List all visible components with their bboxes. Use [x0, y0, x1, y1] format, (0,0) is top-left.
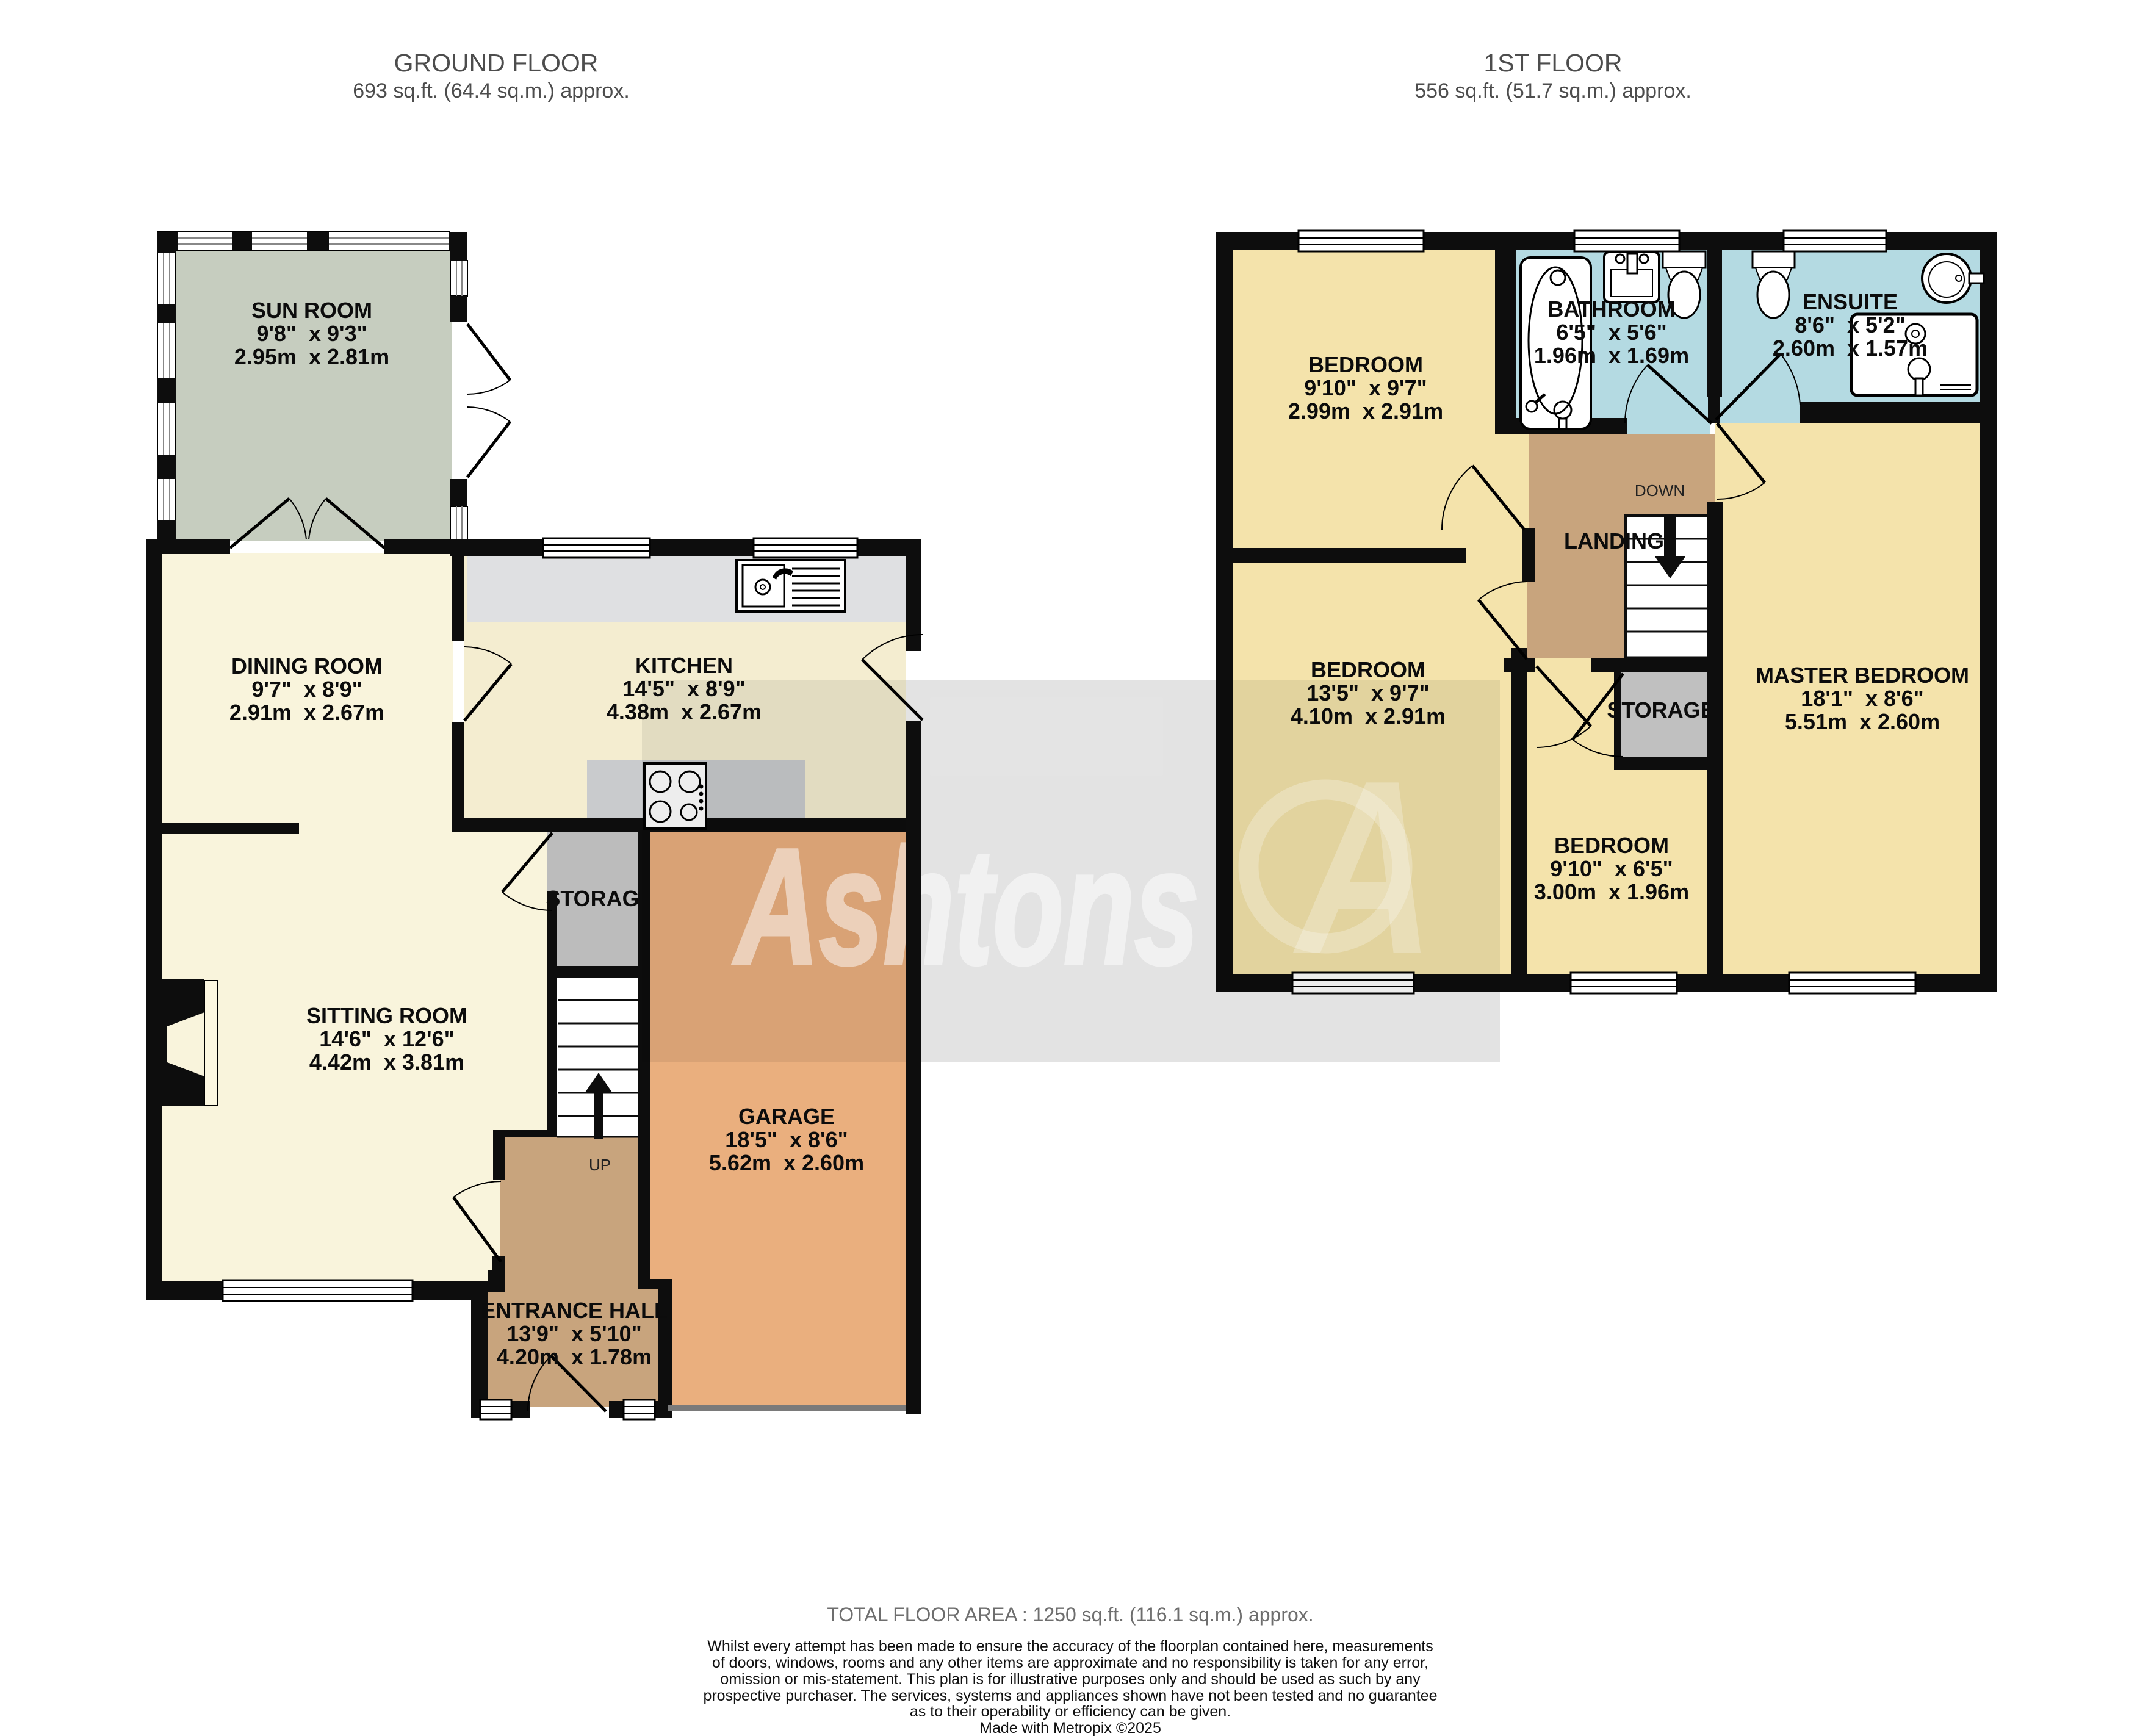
svg-text:as to their operability or eff: as to their operability or efficiency ca… [910, 1703, 1231, 1720]
svg-text:of doors, windows, rooms and a: of doors, windows, rooms and any other i… [712, 1654, 1428, 1671]
svg-text:Made with Metropix ©2025: Made with Metropix ©2025 [979, 1720, 1161, 1736]
svg-text:9'10" x 9'7": 9'10" x 9'7" [1304, 375, 1427, 400]
svg-text:prospective purchaser. The ser: prospective purchaser. The services, sys… [703, 1687, 1437, 1704]
svg-text:2.91m x 2.67m: 2.91m x 2.67m [229, 700, 384, 725]
svg-text:LANDING: LANDING [1564, 528, 1664, 553]
svg-text:UP: UP [589, 1156, 611, 1174]
svg-text:14'6" x 12'6": 14'6" x 12'6" [319, 1026, 454, 1051]
svg-text:9'8" x 9'3": 9'8" x 9'3" [256, 321, 367, 346]
svg-text:GARAGE: GARAGE [738, 1104, 835, 1129]
svg-text:2.60m x 1.57m: 2.60m x 1.57m [1773, 336, 1928, 361]
svg-text:3.00m x 1.96m: 3.00m x 1.96m [1534, 879, 1689, 904]
svg-text:8'6" x 5'2": 8'6" x 5'2" [1795, 312, 1905, 337]
svg-text:2.99m x 2.91m: 2.99m x 2.91m [1288, 398, 1443, 423]
svg-text:Whilst every attempt has been: Whilst every attempt has been made to en… [707, 1638, 1433, 1655]
svg-text:18'1" x 8'6": 18'1" x 8'6" [1801, 686, 1923, 711]
svg-text:ENTRANCE HALL: ENTRANCE HALL [481, 1298, 668, 1323]
svg-text:4.42m x 3.81m: 4.42m x 3.81m [309, 1050, 464, 1075]
svg-text:6'5" x 5'6": 6'5" x 5'6" [1556, 320, 1666, 345]
svg-text:693 sq.ft. (64.4 sq.m.) approx: 693 sq.ft. (64.4 sq.m.) approx. [353, 79, 630, 103]
svg-text:BEDROOM: BEDROOM [1311, 657, 1425, 682]
svg-text:DOWN: DOWN [1635, 481, 1685, 500]
svg-text:BATHROOM: BATHROOM [1547, 297, 1675, 322]
svg-text:BEDROOM: BEDROOM [1308, 352, 1423, 377]
svg-text:1ST FLOOR: 1ST FLOOR [1483, 49, 1622, 77]
svg-text:13'9" x 5'10": 13'9" x 5'10" [506, 1321, 641, 1346]
svg-text:4.20m x 1.78m: 4.20m x 1.78m [497, 1344, 652, 1369]
svg-text:9'10" x 6'5": 9'10" x 6'5" [1550, 856, 1673, 881]
svg-text:5.51m x 2.60m: 5.51m x 2.60m [1785, 709, 1940, 734]
svg-text:omission or mis-statement. Thi: omission or mis-statement. This plan is … [720, 1671, 1421, 1688]
svg-text:Ashtons: Ashtons [732, 815, 1199, 999]
svg-text:DINING ROOM: DINING ROOM [231, 654, 383, 679]
svg-text:STORAGE: STORAGE [546, 886, 654, 911]
svg-text:STORAGE: STORAGE [1607, 697, 1715, 722]
svg-text:ENSUITE: ENSUITE [1803, 289, 1898, 314]
svg-text:BEDROOM: BEDROOM [1554, 833, 1669, 858]
svg-text:9'7" x 8'9": 9'7" x 8'9" [251, 677, 362, 702]
svg-text:KITCHEN: KITCHEN [635, 653, 733, 678]
svg-text:SITTING ROOM: SITTING ROOM [306, 1003, 467, 1028]
svg-text:GROUND FLOOR: GROUND FLOOR [394, 49, 599, 77]
svg-text:TOTAL FLOOR AREA : 1250 sq.ft.: TOTAL FLOOR AREA : 1250 sq.ft. (116.1 sq… [827, 1604, 1313, 1626]
svg-text:18'5" x 8'6": 18'5" x 8'6" [725, 1127, 848, 1152]
svg-text:A: A [1291, 729, 1435, 1005]
svg-text:2.95m x 2.81m: 2.95m x 2.81m [234, 344, 389, 369]
svg-text:556 sq.ft. (51.7 sq.m.) approx: 556 sq.ft. (51.7 sq.m.) approx. [1414, 79, 1691, 103]
svg-text:5.62m x 2.60m: 5.62m x 2.60m [709, 1150, 864, 1175]
svg-text:SUN ROOM: SUN ROOM [251, 298, 372, 323]
svg-text:MASTER BEDROOM: MASTER BEDROOM [1756, 663, 1969, 688]
svg-text:1.96m x 1.69m: 1.96m x 1.69m [1534, 343, 1689, 368]
